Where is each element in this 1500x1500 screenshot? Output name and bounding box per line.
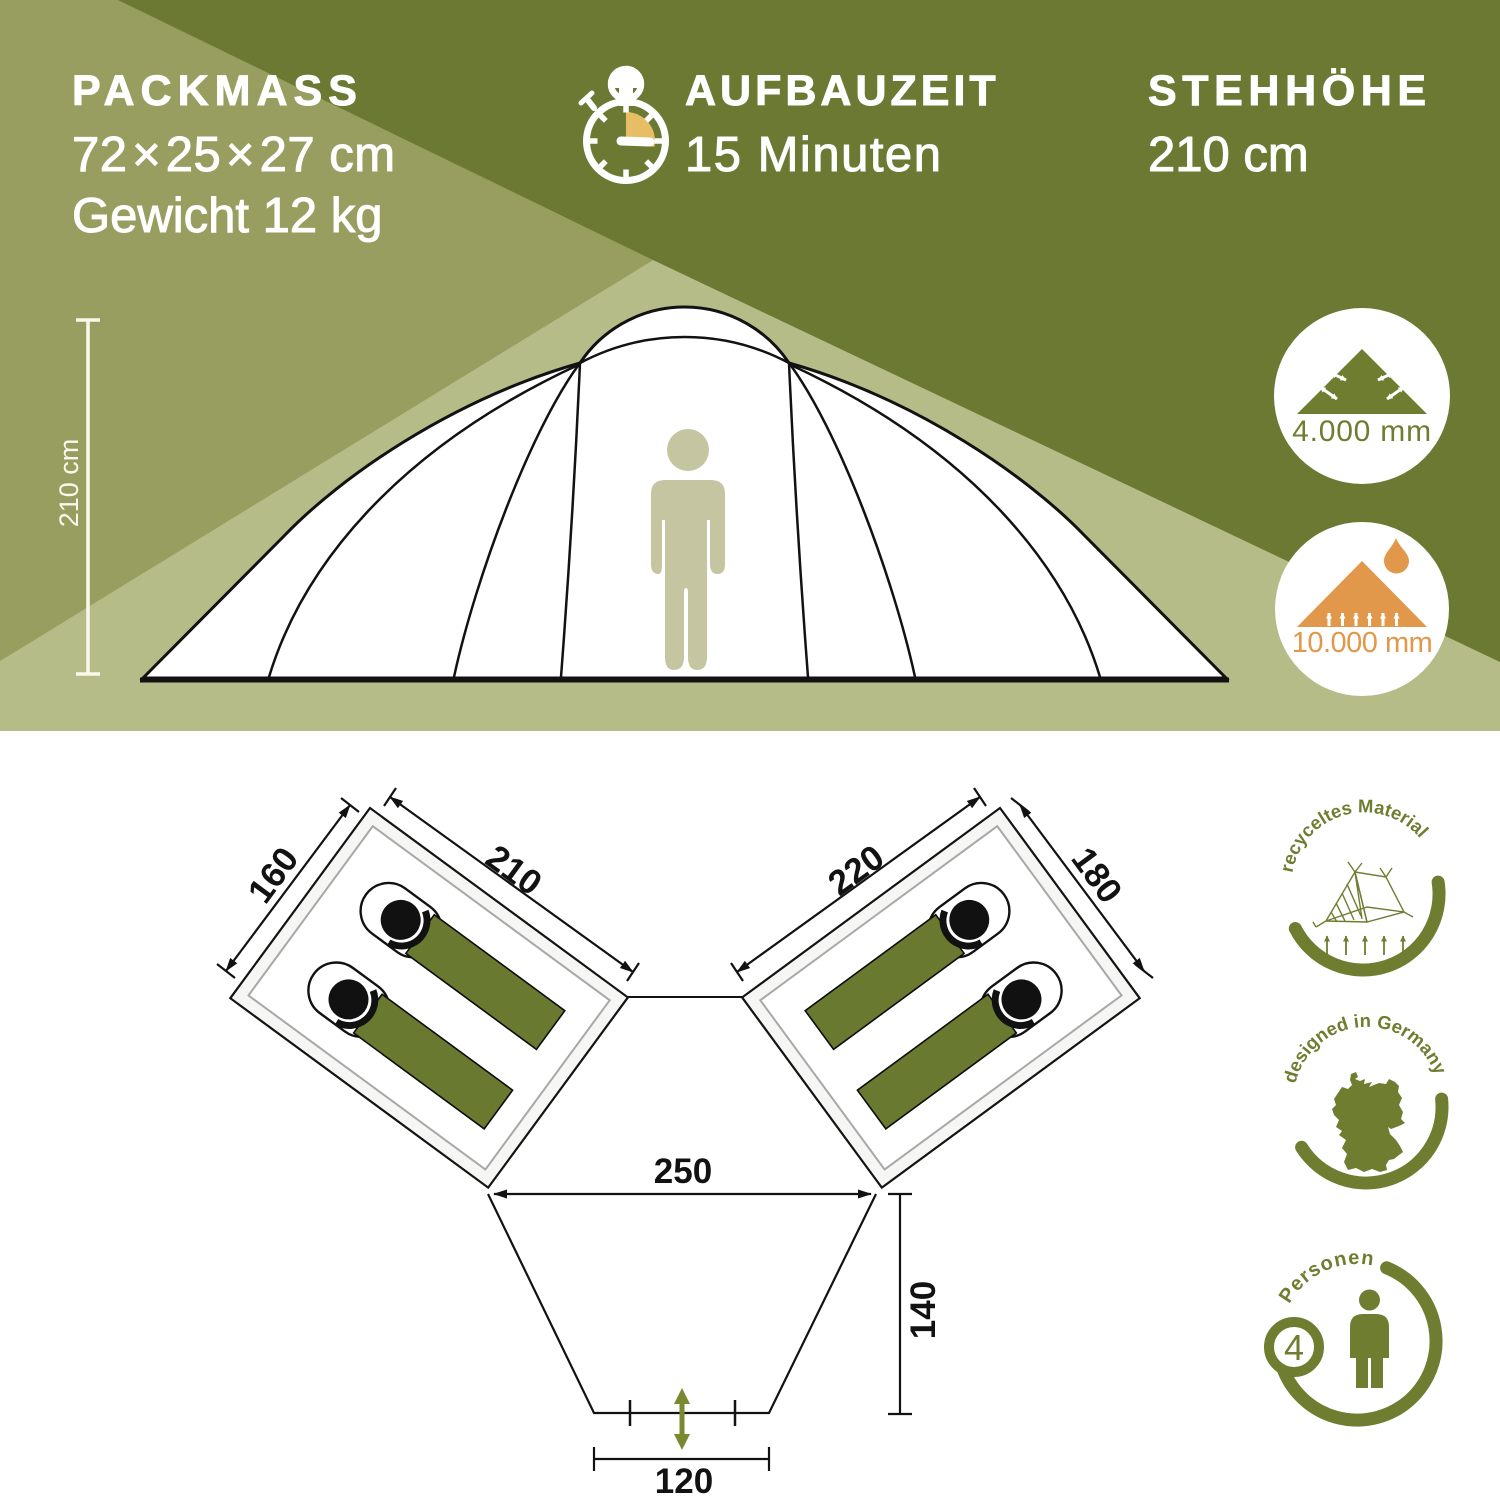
svg-text:Gewicht 12 kg: Gewicht 12 kg — [72, 189, 383, 243]
svg-text:210 cm: 210 cm — [54, 439, 84, 528]
svg-text:PACKMASS: PACKMASS — [72, 67, 363, 115]
svg-text:72 × 25 × 27 cm: 72 × 25 × 27 cm — [72, 128, 396, 182]
svg-text:220: 220 — [821, 837, 891, 903]
svg-text:AUFBAUZEIT: AUFBAUZEIT — [685, 67, 1000, 115]
svg-text:120: 120 — [655, 1462, 713, 1500]
svg-text:10.000 mm: 10.000 mm — [1292, 627, 1433, 659]
svg-text:4: 4 — [1284, 1327, 1304, 1368]
svg-text:250: 250 — [654, 1152, 712, 1191]
svg-text:4.000 mm: 4.000 mm — [1292, 415, 1432, 448]
svg-text:210 cm: 210 cm — [1148, 128, 1309, 182]
svg-text:160: 160 — [240, 840, 306, 910]
svg-text:recyceltes Material: recyceltes Material — [1276, 795, 1433, 874]
svg-text:180: 180 — [1064, 840, 1130, 910]
svg-text:140: 140 — [904, 1281, 943, 1339]
svg-text:designed in Germany: designed in Germany — [1279, 1010, 1452, 1085]
svg-text:15 Minuten: 15 Minuten — [685, 128, 942, 182]
svg-text:STEHHÖHE: STEHHÖHE — [1148, 67, 1432, 115]
svg-text:210: 210 — [479, 837, 549, 903]
